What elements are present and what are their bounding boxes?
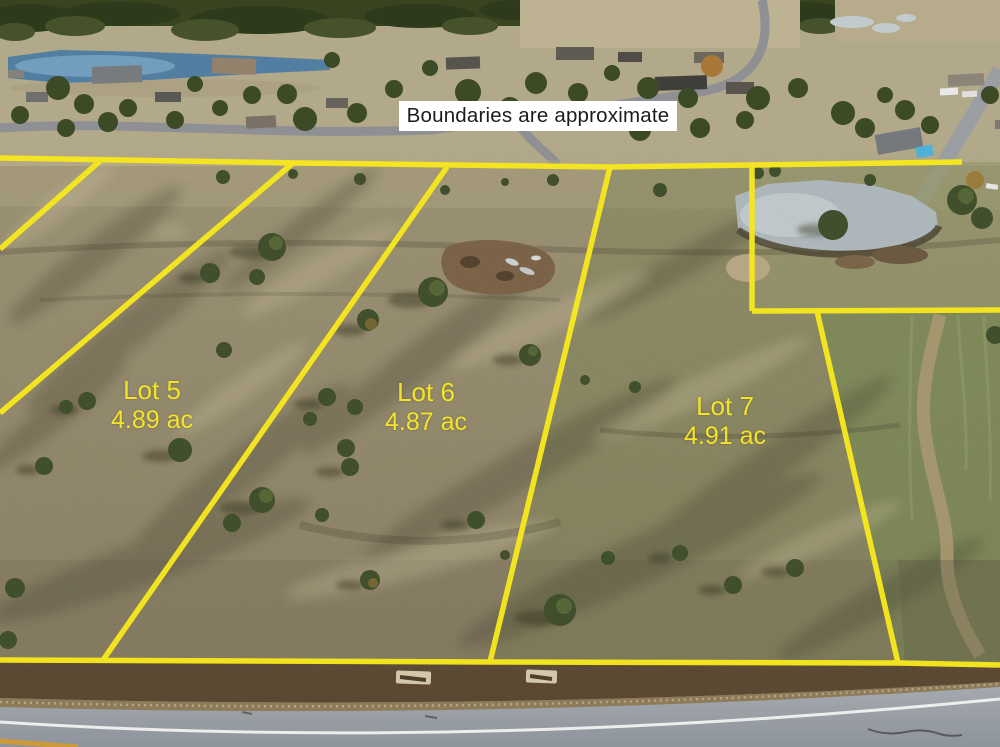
lot5-label: Lot 5 4.89 ac [72, 375, 232, 435]
lot6-area: 4.87 ac [346, 407, 506, 437]
boundary-pond-cutout-south [752, 310, 1000, 311]
lot7-area: 4.91 ac [645, 421, 805, 451]
aerial-lot-map: Boundaries are approximate Lot 5 4.89 ac… [0, 0, 1000, 747]
lot6-name: Lot 6 [346, 377, 506, 407]
lot7-name: Lot 7 [645, 391, 805, 421]
lot5-area: 4.89 ac [72, 405, 232, 435]
lot5-name: Lot 5 [72, 375, 232, 405]
disclaimer-text: Boundaries are approximate [407, 104, 670, 128]
lot6-label: Lot 6 4.87 ac [346, 377, 506, 437]
autumn-tree [701, 55, 723, 77]
disclaimer-banner: Boundaries are approximate [399, 101, 677, 131]
lot7-label: Lot 7 4.91 ac [645, 391, 805, 451]
